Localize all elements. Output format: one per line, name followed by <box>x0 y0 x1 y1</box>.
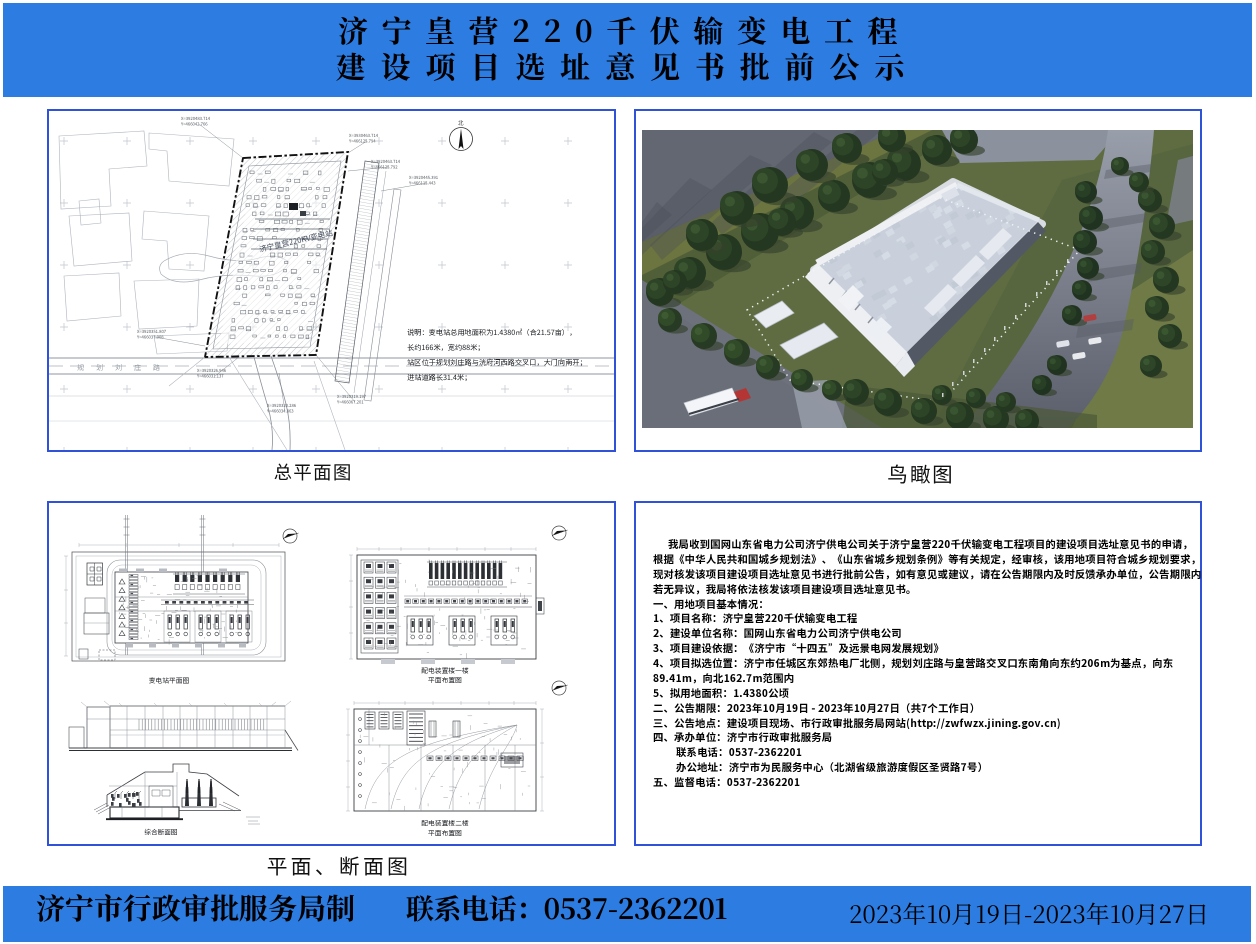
svg-text:Y=466042.766: Y=466042.766 <box>181 122 208 128</box>
svg-text:说明：变电站总用地面积为1.4380㎡（合21.57亩），: 说明：变电站总用地面积为1.4380㎡（合21.57亩）， <box>407 328 576 338</box>
svg-text:平面布置图: 平面布置图 <box>428 675 462 685</box>
svg-text:Y=466037.008: Y=466037.008 <box>137 335 164 341</box>
svg-text:Y=466034.863: Y=466034.863 <box>267 409 294 415</box>
svg-text:Y=466125.794: Y=466125.794 <box>349 139 376 145</box>
svg-text:Y=466125.792: Y=466125.792 <box>371 165 398 171</box>
svg-text:配电装置楼一楼: 配电装置楼一楼 <box>421 665 469 675</box>
svg-text:平面布置图: 平面布置图 <box>428 828 462 838</box>
svg-text:进站道路长31.4米；: 进站道路长31.4米； <box>407 373 471 383</box>
svg-text:变电站平面图: 变电站平面图 <box>149 675 190 685</box>
svg-text:Y=466115.443: Y=466115.443 <box>409 181 436 187</box>
svg-text:规划刘庄路: 规划刘庄路 <box>77 363 172 373</box>
svg-text:北: 北 <box>458 119 464 127</box>
svg-text:站区位于规划刘庄路与洸府河西路交叉口，大门向南开；: 站区位于规划刘庄路与洸府河西路交叉口，大门向南开； <box>407 358 587 368</box>
svg-text:Y=466031.137: Y=466031.137 <box>197 374 224 380</box>
svg-text:综合断面图: 综合断面图 <box>145 827 178 837</box>
svg-text:长约166米，宽约88米；: 长约166米，宽约88米； <box>407 343 484 353</box>
svg-text:Y=466067.201: Y=466067.201 <box>337 400 364 406</box>
svg-text:配电装置楼二楼: 配电装置楼二楼 <box>421 818 469 828</box>
